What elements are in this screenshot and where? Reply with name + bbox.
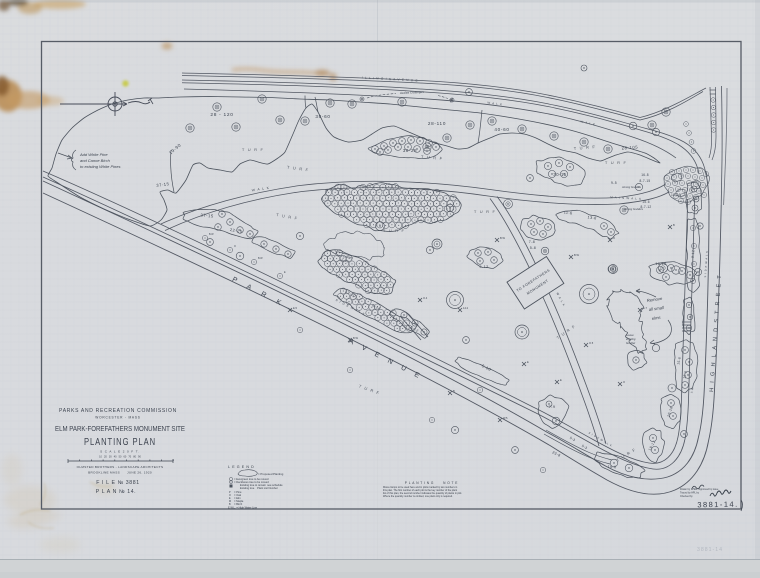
svg-text:T U R F: T U R F [242,147,264,152]
svg-text:Checked by: Checked by [680,495,693,498]
svg-text:18-15: 18-15 [671,193,681,197]
svg-text:3881-14.: 3881-14. [697,500,738,510]
svg-text:T U R F: T U R F [383,228,405,233]
svg-text:19-8: 19-8 [608,465,617,470]
svg-text:B.W: B.W [500,236,505,240]
svg-text:E: E [527,360,529,364]
svg-text:28 - 120: 28 - 120 [210,112,233,118]
svg-text:3881-14: 3881-14 [697,547,723,553]
svg-text:E.5: E.5 [293,306,297,310]
svg-text:E: E [560,378,562,382]
svg-text:F I L E № 3881: F I L E № 3881 [96,480,139,486]
svg-text:28-110: 28-110 [428,121,446,126]
svg-text:8-12: 8-12 [691,250,696,259]
svg-text:14.2: 14.2 [463,306,469,310]
svg-text:O.5: O.5 [589,341,594,345]
svg-text:15-6: 15-6 [642,200,650,204]
svg-text:38-60: 38-60 [315,114,330,119]
svg-text:B: B [453,389,455,393]
svg-text:O: O [613,236,615,240]
svg-text:W.5: W.5 [503,416,508,420]
svg-text:Existing tree Plant List N: Existing tree Plant List Number [240,486,278,490]
svg-text:7-9: 7-9 [549,405,556,409]
svg-text:Where the quantity number: Where the quantity number is omitted, on… [383,495,453,498]
svg-text:= Proposed Planting: = Proposed Planting [258,472,284,476]
svg-text:30-25: 30-25 [403,148,417,153]
svg-text:E.W.L. = High Water Line: E.W.L. = High Water Line [228,506,258,510]
svg-text:Add White Pine: Add White Pine [79,152,108,157]
svg-text:B.W: B.W [209,233,214,236]
svg-text:PARKS AND RECREATION COMMIS: PARKS AND RECREATION COMMISSION [59,408,177,414]
svg-text:OLMSTED BROTHERS - LANDSCAP: OLMSTED BROTHERS - LANDSCAPE ARCHITECTS [77,465,164,469]
svg-text:9-12: 9-12 [479,265,488,269]
svg-text:PLANTING PLAN: PLANTING PLAN [84,437,156,448]
svg-text:16-8: 16-8 [641,173,649,177]
svg-text:P L A N № 14.: P L A N № 14. [96,489,136,495]
svg-text:B: B [673,223,675,227]
svg-text:O.4: O.4 [423,296,428,300]
svg-text:S C A L E 2 0 F T.: S C A L E 2 0 F T. [100,450,140,454]
svg-text:E.7: E.7 [643,306,647,310]
svg-text:O: O [623,380,625,384]
svg-text:40-60: 40-60 [494,127,509,132]
svg-text:= Birch: = Birch [234,502,243,506]
svg-text:BROOKLINE MASS JUNE 26,: BROOKLINE MASS JUNE 26, 1920 [88,471,152,475]
svg-text:T U R F: T U R F [474,209,496,214]
svg-text:PLANTING NOTE: PLANTING NOTE [405,481,459,485]
svg-text:O: O [234,245,236,248]
svg-text:16-18: 16-18 [655,262,666,266]
svg-text:and Canoe Birch: and Canoe Birch [80,158,111,163]
svg-text:boulder: boulder [626,341,636,345]
svg-text:WORCESTER - MASS: WORCESTER - MASS [95,416,140,420]
svg-text:9-5: 9-5 [611,181,617,185]
svg-text:T U R F: T U R F [605,160,627,165]
svg-text:LEGEND: LEGEND [228,465,256,469]
svg-text:30-15: 30-15 [553,172,566,177]
svg-text:5-8: 5-8 [530,246,536,250]
svg-text:to existing White Pines: to existing White Pines [80,164,120,169]
svg-text:B.W: B.W [574,253,579,257]
svg-text:10 20 30 40 50 60: 10 20 30 40 50 60 70 80 90 [99,456,141,459]
svg-text:7-8: 7-8 [529,240,535,244]
svg-text:Among boulders: Among boulders [623,207,644,211]
svg-text:ELM PARK-FOREFATHERS MONUMENT: ELM PARK-FOREFATHERS MONUMENT SITE [55,424,185,433]
svg-text:B.W: B.W [258,257,263,260]
svg-text:8-7-15: 8-7-15 [639,179,650,183]
svg-text:Among boulders: Among boulders [621,185,642,189]
